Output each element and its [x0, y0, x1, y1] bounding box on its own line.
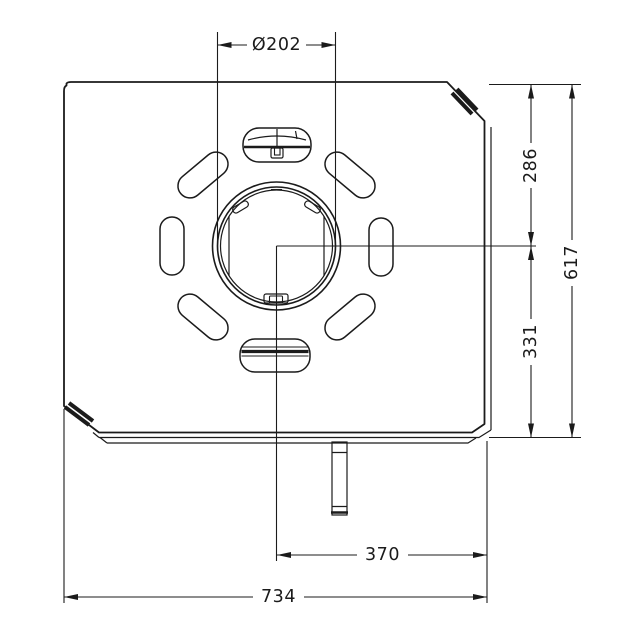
dim-top-to-center: 286: [521, 85, 541, 247]
dim-label-overall-width: 734: [261, 587, 296, 607]
technical-drawing-canvas: Ø202 286 331 617 370 734: [0, 0, 631, 625]
slot-lower-left: [173, 289, 233, 345]
slot-upper-left: [173, 147, 233, 203]
bayonet-notch-right: [304, 200, 322, 214]
bayonet-notch-left: [232, 200, 250, 214]
slot-upper-right: [320, 147, 380, 203]
dim-label-overall-height: 617: [562, 245, 582, 280]
dim-center-to-right: 370: [277, 441, 487, 603]
corner-hatch-bottom-left: [65, 403, 93, 425]
dim-overall-height: 617: [562, 85, 582, 438]
drawing-page: Ø202 286 331 617 370 734: [0, 0, 631, 625]
plate-bottom-inner-edge: [99, 430, 491, 438]
slot-bottom-band: [240, 339, 310, 372]
slot-right: [369, 218, 393, 276]
plate-bottom-lip-edge: [107, 438, 476, 443]
slot-left: [160, 217, 184, 275]
bottom-stem: [331, 442, 348, 515]
dim-label-top-to-center: 286: [521, 148, 541, 183]
dim-overall-width: 734: [64, 409, 487, 607]
dim-label-hole-diameter: Ø202: [252, 35, 301, 55]
plate-outline: [64, 82, 485, 433]
slot-top-latch: [243, 128, 311, 162]
slot-lower-right: [320, 289, 380, 345]
dim-label-center-to-bottom: 331: [521, 324, 541, 359]
dim-label-center-to-right: 370: [365, 545, 400, 565]
dim-center-to-bottom: 331: [521, 246, 541, 438]
